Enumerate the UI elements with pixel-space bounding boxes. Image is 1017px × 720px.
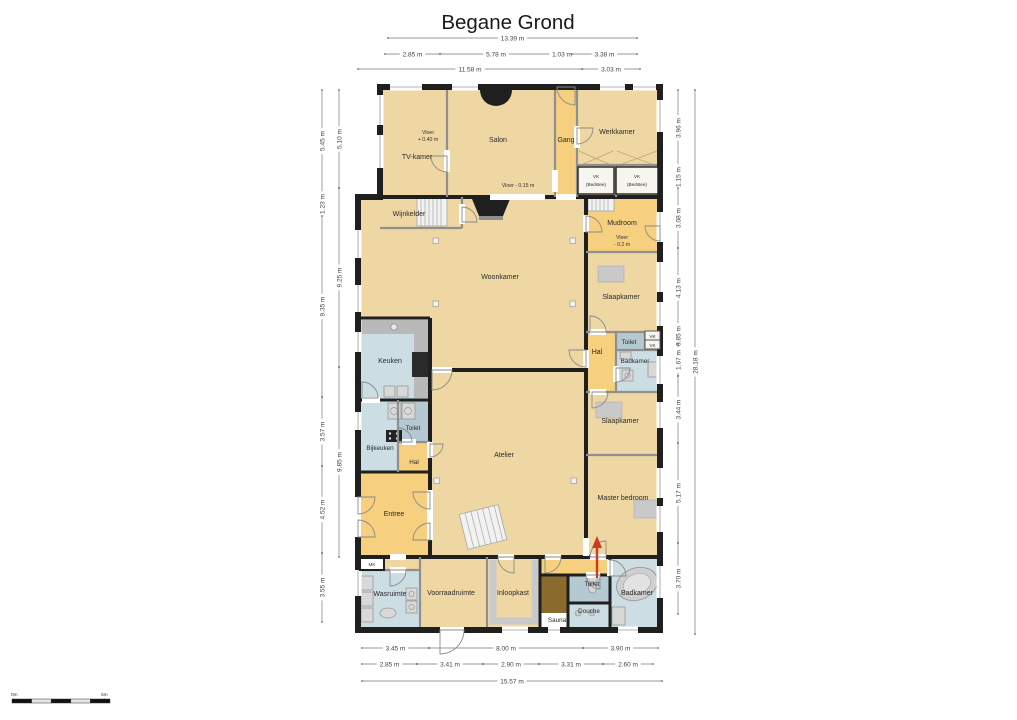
dimension-label: 9.85 m bbox=[336, 452, 343, 472]
room-label-hal-1: Hal bbox=[592, 349, 603, 356]
room-label-hal-2: Hal bbox=[409, 459, 418, 466]
floorplan-page: Begane Grond bbox=[0, 0, 1017, 720]
room-label-master-bedroom: Master bedroom bbox=[598, 495, 649, 502]
dimension-label: 4.52 m bbox=[319, 500, 326, 520]
room-label-badkamer-2: Badkamer bbox=[621, 590, 654, 597]
room-floor-sauna bbox=[540, 575, 568, 613]
dimension-label: 5.10 m bbox=[336, 129, 343, 149]
room-label-douche: Douche bbox=[578, 608, 600, 615]
room-label-keuken: Keuken bbox=[378, 358, 402, 365]
room-label-salon: Salon bbox=[489, 137, 507, 144]
dimension-label: 5.45 m bbox=[319, 131, 326, 151]
room-label-mudroom: Mudroom bbox=[607, 220, 637, 227]
room-label-inloopkast: Inloopkast bbox=[497, 590, 529, 597]
room-label-toilet-1: Toilet bbox=[622, 339, 637, 346]
dimension-label: 1.23 m bbox=[319, 194, 326, 214]
room-label-gang: Gang bbox=[557, 137, 574, 144]
room-label-slaapkamer-1: Slaapkamer bbox=[602, 294, 640, 301]
dimension-label: 4.13 m bbox=[675, 278, 682, 298]
dimension-label: 3.96 m bbox=[675, 118, 682, 138]
room-label-werkkamer: Werkkamer bbox=[599, 129, 635, 136]
vk-bedstee-box-1 bbox=[578, 167, 614, 194]
dimension-label: 2.60 m bbox=[618, 661, 638, 668]
dimension-label: 5.17 m bbox=[675, 483, 682, 503]
dimension-label: 3.45 m bbox=[386, 645, 406, 652]
dimension-label: 3.90 m bbox=[611, 645, 631, 652]
dimension-label: 15.57 m bbox=[500, 678, 524, 685]
page-title: Begane Grond bbox=[441, 11, 574, 34]
dimension-label: 3.38 m bbox=[595, 51, 615, 58]
dimension-label: 2.90 m bbox=[501, 661, 521, 668]
dimension-label: 1.03 m bbox=[552, 51, 572, 58]
dimension-label: 3.44 m bbox=[675, 400, 682, 420]
dimension-label: 3.08 m bbox=[675, 208, 682, 228]
scale-bar-start: 0m bbox=[11, 692, 18, 698]
rug-slaapkamer-2 bbox=[596, 402, 622, 418]
dimension-label: 3.31 m bbox=[561, 661, 581, 668]
mk-label: MK bbox=[369, 562, 377, 567]
dimension-label: 1.67 m bbox=[675, 350, 682, 370]
dimension-label: 2.85 m bbox=[403, 51, 423, 58]
floorplan-drawing: Begane Grond bbox=[0, 0, 1017, 720]
room-label-wijnkelder: Wijnkelder bbox=[393, 211, 426, 218]
dimension-label: 13.39 m bbox=[501, 35, 525, 42]
vk-bedstee-label-1a: VK bbox=[593, 174, 600, 179]
dimension-label: 3.03 m bbox=[601, 66, 621, 73]
vk-bedstee-label-2a: VK bbox=[634, 174, 641, 179]
dimension-label: 5.78 m bbox=[486, 51, 506, 58]
dimension-label: 9.25 m bbox=[336, 268, 343, 288]
room-label-sauna: Sauna bbox=[548, 617, 567, 624]
annotation-vloer-mudroom-1: Vloer bbox=[616, 235, 628, 241]
dimension-label: 3.41 m bbox=[440, 661, 460, 668]
room-label-atelier: Atelier bbox=[494, 452, 515, 459]
dimension-label: 11.58 m bbox=[458, 66, 481, 73]
room-label-woonkamer: Woonkamer bbox=[481, 274, 519, 281]
annotation-vloer-mudroom-2: - 0.2 m bbox=[614, 242, 630, 248]
vk-bedstee-label-1b: (Bedstee) bbox=[586, 182, 606, 187]
scale-bar: 0m 5m bbox=[11, 692, 110, 703]
dimension-label: 1.15 m bbox=[675, 167, 682, 187]
room-label-entree: Entree bbox=[384, 511, 405, 518]
dimension-label: 8.00 m bbox=[496, 645, 516, 652]
vk-label-1: VK bbox=[649, 334, 656, 339]
room-label-toilet-2: Toilet bbox=[406, 425, 421, 432]
dimension-label: 0.85 m bbox=[675, 326, 682, 346]
dimension-label: 3.55 m bbox=[319, 578, 326, 598]
scale-bar-end: 5m bbox=[101, 692, 108, 698]
room-floor-hal-2 bbox=[398, 442, 430, 472]
vk-bedstee-box-2 bbox=[616, 167, 658, 194]
annotation-vloer-tv-2: + 0.40 m bbox=[418, 137, 438, 143]
dimension-label: 2.85 m bbox=[380, 661, 400, 668]
room-label-slaapkamer-2: Slaapkamer bbox=[601, 418, 639, 425]
vk-label-2: VK bbox=[649, 343, 656, 348]
room-label-voorraadruimte: Voorraadruimte bbox=[427, 590, 475, 597]
annotation-vloer-tv-1: Vloer bbox=[422, 130, 434, 136]
room-floor-hal-1 bbox=[586, 332, 616, 392]
annotation-vloer-salon: Vloer - 0.15 m bbox=[502, 183, 535, 189]
room-label-wasruimte: Wasruimte bbox=[373, 591, 406, 598]
room-label-toilet-3: Toilet bbox=[585, 581, 600, 588]
stairs-mudroom bbox=[588, 198, 614, 211]
rug-master-bedroom bbox=[634, 500, 660, 518]
dimension-label: 28.18 m bbox=[692, 350, 699, 374]
dimension-label: 9.35 m bbox=[319, 297, 326, 317]
rug-slaapkamer-1 bbox=[598, 266, 624, 282]
room-label-badkamer-1: Badkamer bbox=[621, 358, 650, 365]
vk-bedstee-label-2b: (Bedstee) bbox=[627, 182, 647, 187]
dimension-label: 3.57 m bbox=[319, 422, 326, 442]
room-label-bijkeuken: Bijkeuken bbox=[366, 445, 394, 452]
dimension-label: 3.70 m bbox=[675, 569, 682, 589]
room-label-tv-kamer: TV-kamer bbox=[402, 154, 433, 161]
